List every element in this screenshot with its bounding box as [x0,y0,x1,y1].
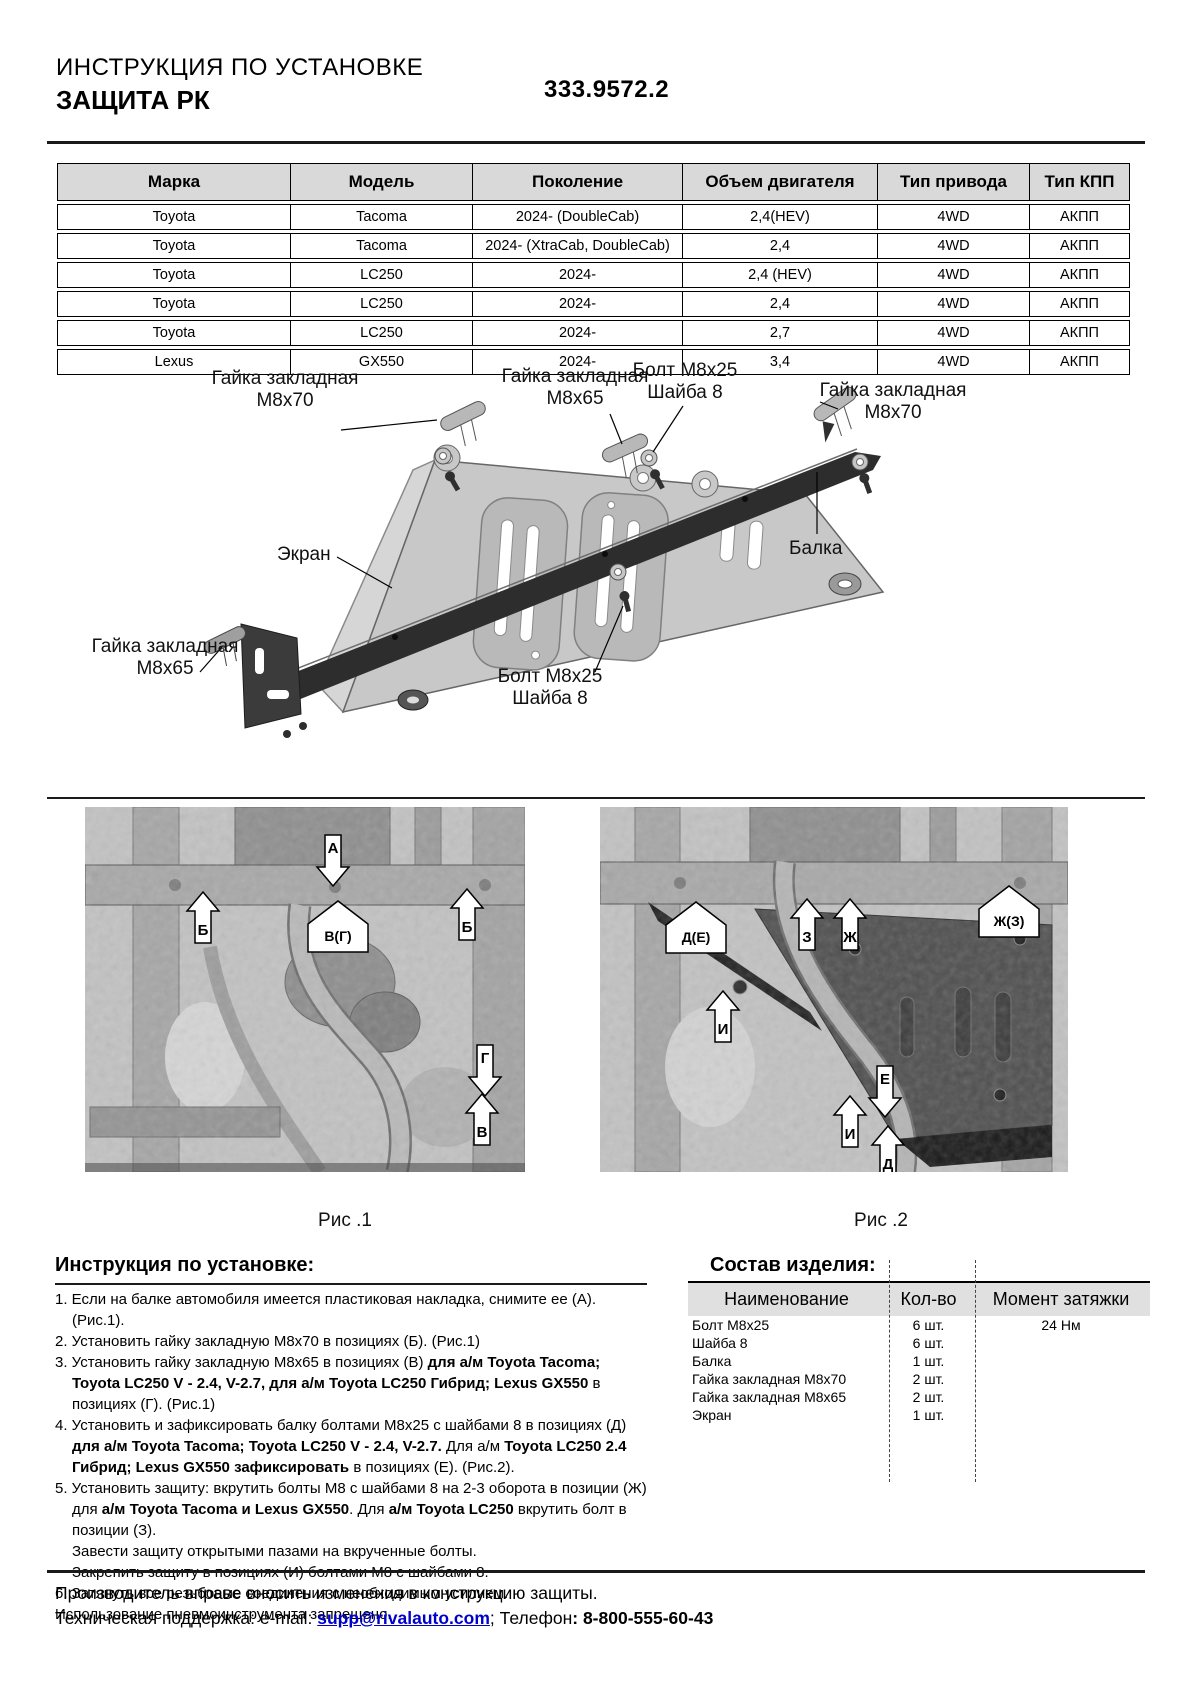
fitment-cell: 2,4 (HEV) [683,262,878,288]
fitment-header-cell: Объем двигателя [683,163,878,201]
instructions-title: Инструкция по установке: [55,1254,314,1277]
label-bolt-washer-top: Болт М8х25Шайба 8 [605,360,765,404]
label-rivet-nut-m8x65-bottom: Гайка закладнаяМ8х65 [70,636,260,680]
bolt [858,472,875,495]
washer-hole [646,455,653,462]
fitment-cell: 2024- (XtraCab, DoubleCab) [473,233,683,259]
washer-hole [857,459,864,466]
fitment-cell: 4WD [878,320,1030,346]
fitment-cell: LC250 [291,291,473,317]
parts-row: Шайба 86 шт. [688,1334,1150,1352]
svg-text:Б: Б [462,919,473,936]
fitment-header-cell: Тип привода [878,163,1030,201]
parts-cell-name: Экран [688,1406,885,1424]
fitment-cell: 2024- (DoubleCab) [473,204,683,230]
dashed-column-separator [975,1260,976,1482]
fitment-cell: Toyota [57,204,291,230]
fitment-cell: 2024- [473,291,683,317]
fitment-cell: 2,4 [683,291,878,317]
fitment-cell: Toyota [57,262,291,288]
parts-cell-qty: 1 шт. [885,1352,972,1370]
parts-row: Балка1 шт. [688,1352,1150,1370]
instruction-line: 1. Если на балке автомобиля имеется плас… [55,1289,651,1331]
doc-subtitle: ЗАЩИТА РК [56,85,210,116]
parts-cell-qty: 6 шт. [885,1316,972,1334]
oval-fitting-hole [838,580,852,588]
svg-text:Б: Б [198,922,209,939]
fitment-header-cell: Марка [57,163,291,201]
parts-cell-name: Гайка закладная М8х65 [688,1388,885,1406]
svg-text:А: А [328,840,339,857]
figure-1-photo: А Б В(Г) Б Г В [85,807,525,1172]
svg-text:В: В [477,1124,488,1141]
parts-cell-name: Шайба 8 [688,1334,885,1352]
washer-hole [440,453,447,460]
fitment-cell: Toyota [57,233,291,259]
label-shield: Экран [277,544,331,566]
parts-row: Гайка закладная М8х652 шт. [688,1388,1150,1406]
parts-cell-torque [972,1406,1150,1424]
fitment-cell: 4WD [878,233,1030,259]
parts-cell-torque [972,1388,1150,1406]
fitment-cell: АКПП [1030,262,1130,288]
fitment-header-cell: Модель [291,163,473,201]
fitment-row: ToyotaLC2502024-2,4 (HEV)4WDАКПП [57,262,1130,288]
divider [47,141,1145,144]
fitment-cell: Toyota [57,291,291,317]
fitment-cell: 4WD [878,204,1030,230]
label-beam: Балка [789,538,842,560]
parts-row: Гайка закладная М8х702 шт. [688,1370,1150,1388]
parts-title: Состав изделия: [710,1254,876,1277]
svg-text:И: И [845,1126,856,1143]
label-bolt-washer-bottom: Болт М8х25Шайба 8 [470,666,630,710]
exploded-view-diagram: Гайка закладнаяМ8х70 Гайка закладнаяМ8х6… [45,352,1150,794]
label-rivet-nut-m8x70-right: Гайка закладнаяМ8х70 [798,380,988,424]
parts-table-box: НаименованиеКол-воМомент затяжки Болт М8… [688,1281,1150,1424]
fitment-cell: Tacoma [291,233,473,259]
fitment-cell: 2024- [473,262,683,288]
parts-header-row: НаименованиеКол-воМомент затяжки [688,1283,1150,1316]
fitment-cell: 4WD [878,291,1030,317]
svg-text:Ж(З): Ж(З) [993,913,1025,929]
fitment-cell: 2,4(HEV) [683,204,878,230]
svg-text:З: З [802,929,811,946]
parts-cell-qty: 2 шт. [885,1370,972,1388]
fitment-cell: АКПП [1030,320,1130,346]
fitment-cell: АКПП [1030,233,1130,259]
parts-row: Болт М8х256 шт.24 Нм [688,1316,1150,1334]
instruction-line: 5. Установить защиту: вкрутить болты М8 … [55,1478,651,1541]
dashed-column-separator [889,1260,890,1482]
parts-cell-torque [972,1370,1150,1388]
support-prefix: Техническая поддержка: e-mail: [55,1608,317,1628]
figure-1-caption: Рис .1 [295,1210,395,1232]
phone-label: Телефон [495,1608,572,1628]
fitment-table: МаркаМодельПоколениеОбъем двигателяТип п… [57,160,1130,378]
fitment-cell: LC250 [291,262,473,288]
svg-text:Д(Е): Д(Е) [682,929,711,945]
phone-number: : 8-800-555-60-43 [572,1608,713,1628]
fitment-header-row: МаркаМодельПоколениеОбъем двигателяТип п… [57,163,1130,201]
instructions-list: 1. Если на балке автомобиля имеется плас… [55,1289,651,1625]
footer-disclaimer: Производитель вправе вносить изменения в… [55,1583,598,1604]
fitment-cell: 2,4 [683,233,878,259]
washer-hole [615,569,622,576]
svg-text:В(Г): В(Г) [324,928,351,944]
parts-cell-name: Балка [688,1352,885,1370]
parts-cell-torque: 24 Нм [972,1316,1150,1334]
fitment-cell: LC250 [291,320,473,346]
fitment-header-cell: Поколение [473,163,683,201]
svg-text:Ж: Ж [842,929,857,946]
fitment-cell: АКПП [1030,204,1130,230]
figure-2-caption: Рис .2 [831,1210,931,1232]
fitment-cell: Tacoma [291,204,473,230]
instruction-line: 4. Установить и зафиксировать балку болт… [55,1415,651,1478]
parts-header-cell: Наименование [688,1283,885,1316]
divider [47,797,1145,799]
parts-cell-qty: 6 шт. [885,1334,972,1352]
parts-cell-qty: 2 шт. [885,1388,972,1406]
fitment-cell: 2024- [473,320,683,346]
instruction-sheet: ИНСТРУКЦИЯ ПО УСТАНОВКЕ ЗАЩИТА РК 333.95… [0,0,1190,1683]
divider [47,1570,1145,1573]
fitment-cell: Toyota [57,320,291,346]
parts-header-cell: Кол-во [885,1283,972,1316]
parts-cell-torque [972,1334,1150,1352]
fitment-row: ToyotaTacoma2024- (DoubleCab)2,4(HEV)4WD… [57,204,1130,230]
instruction-line: 2. Установить гайку закладную М8х70 в по… [55,1331,651,1352]
doc-title: ИНСТРУКЦИЯ ПО УСТАНОВКЕ [56,54,423,82]
fitment-row: ToyotaTacoma2024- (XtraCab, DoubleCab)2,… [57,233,1130,259]
fitment-row: ToyotaLC2502024-2,44WDАКПП [57,291,1130,317]
fitment-row: ToyotaLC2502024-2,74WDАКПП [57,320,1130,346]
svg-text:Е: Е [880,1071,890,1088]
fitment-cell: 4WD [878,262,1030,288]
parts-row: Экран1 шт. [688,1406,1150,1424]
label-rivet-nut-m8x70-left: Гайка закладнаяМ8х70 [190,368,380,412]
parts-table: НаименованиеКол-воМомент затяжки Болт М8… [688,1283,1150,1424]
parts-cell-qty: 1 шт. [885,1406,972,1424]
fitment-cell: АКПП [1030,291,1130,317]
parts-cell-name: Гайка закладная М8х70 [688,1370,885,1388]
instruction-line: 3. Установить гайку закладную М8х65 в по… [55,1352,651,1415]
instruction-line: Завести защиту открытыми пазами на вкруч… [55,1541,651,1562]
parts-cell-torque [972,1352,1150,1370]
divider [55,1283,647,1285]
svg-text:Г: Г [481,1050,490,1067]
svg-text:И: И [718,1021,729,1038]
part-number: 333.9572.2 [544,76,669,104]
support-email-link[interactable]: supp@rivalauto.com [317,1608,490,1628]
fitment-header-cell: Тип КПП [1030,163,1130,201]
fitment-cell: 2,7 [683,320,878,346]
footer-support: Техническая поддержка: e-mail: supp@riva… [55,1608,713,1629]
figure-2-photo: Д(Е) З Ж Ж(З) И Е И Д [600,807,1068,1172]
parts-header-cell: Момент затяжки [972,1283,1150,1316]
parts-cell-name: Болт М8х25 [688,1316,885,1334]
svg-text:Д: Д [883,1156,894,1172]
